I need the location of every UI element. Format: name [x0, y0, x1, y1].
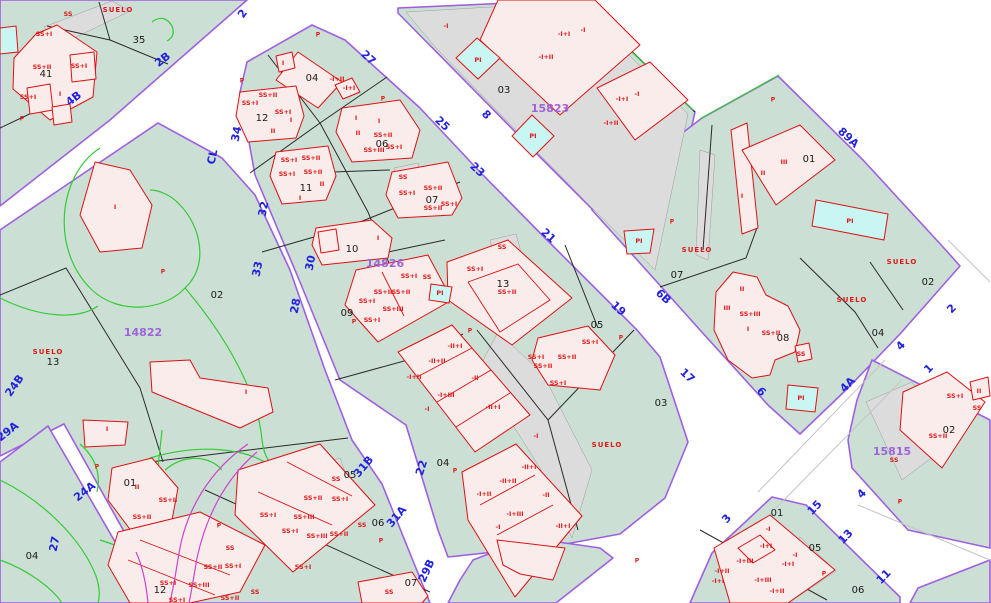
building-floors-label: -I+III: [736, 558, 753, 565]
building-floors-label: SS+III: [188, 582, 209, 589]
parking-mark: P: [771, 97, 776, 104]
pool-label: PI: [797, 394, 804, 402]
building-floors-label: SS: [385, 589, 394, 596]
parcel-number: 04: [26, 551, 39, 562]
building-floors-label: SS+II: [221, 595, 240, 602]
building-floors-label: SS+I: [401, 273, 417, 280]
building-floors-label: SS: [251, 589, 260, 596]
building-floors-label: -I+II: [407, 374, 422, 381]
suelo-label: SUELO: [33, 348, 64, 356]
building-floors-label: -I: [766, 526, 771, 533]
parcel-number: 12: [154, 585, 167, 596]
building-floors-label: SS+I: [359, 298, 375, 305]
parcel-number: 04: [437, 458, 450, 469]
parcel-id: 15815: [873, 445, 911, 458]
building-floors-label: SS+III: [293, 514, 314, 521]
building-floors-label: SS: [64, 11, 73, 18]
building[interactable]: [318, 229, 339, 253]
parcel-number: 03: [655, 398, 668, 409]
building-floors-label: I: [59, 91, 61, 98]
building-floors-label: I: [741, 193, 743, 200]
parking-mark: P: [635, 558, 640, 565]
building-floors-label: II: [740, 286, 745, 293]
building-floors-label: SS+II: [304, 495, 323, 502]
parcel-number: 07: [671, 270, 684, 281]
building-floors-label: SS: [973, 405, 982, 412]
building-floors-label: SS+I: [364, 317, 380, 324]
parking-mark: P: [379, 538, 384, 545]
suelo-label: SUELO: [837, 296, 868, 304]
building-floors-label: -I: [496, 524, 501, 531]
parking-mark: P: [619, 335, 624, 342]
building-floors-label: SS+II: [374, 132, 393, 139]
parcel-id: 14822: [124, 326, 162, 339]
building-floors-label: SS+I: [275, 109, 291, 116]
building-floors-label: II: [320, 181, 325, 188]
building-floors-label: -I+II: [330, 76, 345, 83]
building-floors-label: -II: [471, 375, 478, 382]
parking-mark: P: [898, 499, 903, 506]
building-floors-label: -I+II: [770, 588, 785, 595]
parcel-number: 09: [341, 308, 354, 319]
parcel-number: 11: [300, 183, 313, 194]
building-floors-label: SS: [797, 351, 806, 358]
building-floors-label: SS: [498, 244, 507, 251]
building-floors-label: -II+II: [499, 478, 516, 485]
building-floors-label: -I+II: [715, 568, 730, 575]
pool-label: PI: [529, 132, 536, 140]
building-floors-label: III: [723, 305, 730, 312]
building-floors-label: SS: [226, 545, 235, 552]
parcel-id: 15823: [531, 102, 569, 115]
building-floors-label: -I: [425, 406, 430, 413]
building-floors-label: SS+II: [330, 531, 349, 538]
parcel-number: 05: [591, 320, 604, 331]
building-floors-label: SS+I: [282, 528, 298, 535]
building[interactable]: [83, 420, 128, 447]
parking-mark: P: [316, 32, 321, 39]
building-floors-label: SS+II: [558, 354, 577, 361]
building-floors-label: -I+II: [477, 491, 492, 498]
building-floors-label: SS+III: [306, 533, 327, 540]
building-floors-label: SS+I: [295, 564, 311, 571]
building-floors-label: SS+II: [302, 155, 321, 162]
pool-label: PI: [846, 217, 853, 225]
parcel-number: 35: [133, 35, 146, 46]
building-floors-label: SS+I: [36, 31, 52, 38]
parcel-number: 05: [809, 543, 822, 554]
parcel-number: 06: [376, 139, 389, 150]
building-floors-label: SS+II: [374, 289, 393, 296]
pool-label: PI: [635, 237, 642, 245]
parcel-number: 06: [852, 585, 865, 596]
building-floors-label: SS+I: [279, 171, 295, 178]
building-floors-label: SS: [358, 522, 367, 529]
parcel-id: 14826: [366, 257, 405, 270]
building-floors-label: SS: [332, 476, 341, 483]
building-floors-label: -I: [534, 433, 539, 440]
parcel-number: 13: [47, 357, 60, 368]
building-floors-label: I: [106, 426, 108, 433]
building-floors-label: SS+I: [528, 354, 544, 361]
building-floors-label: II: [761, 170, 766, 177]
building-floors-label: SS+II: [159, 497, 178, 504]
building-floors-label: I: [378, 118, 380, 125]
parcel-number: 04: [306, 73, 319, 84]
building-floors-label: -I: [793, 552, 798, 559]
parcel-number: 01: [771, 508, 784, 519]
pool-label: PI: [436, 289, 443, 297]
building-floors-label: I: [114, 204, 116, 211]
building-floors-label: -I+I: [782, 561, 795, 568]
parcel-number: 01: [124, 478, 137, 489]
building-floors-label: II: [271, 128, 276, 135]
building-floors-label: SS+I: [441, 201, 457, 208]
parcel-number: 12: [256, 113, 269, 124]
building-floors-label: I: [245, 389, 247, 396]
building-floors-label: -II: [542, 492, 549, 499]
suelo-label: SUELO: [682, 246, 713, 254]
suelo-label: SUELO: [103, 6, 134, 14]
parcel-number: 04: [872, 328, 885, 339]
building-floors-label: -I: [635, 91, 640, 98]
building-floors-label: III: [780, 159, 787, 166]
building-floors-label: -I: [581, 27, 586, 34]
parcel-number: 07: [426, 195, 439, 206]
parcel-number: 02: [943, 425, 956, 436]
building-floors-label: SS+II: [259, 92, 278, 99]
parking-mark: P: [161, 269, 166, 276]
building-floors-label: SS+I: [242, 100, 258, 107]
cadastral-map-canvas[interactable]: PIPIPIPIPIPI SSSS+ISS+IISS+ISS+IIIIIIISS…: [0, 0, 991, 603]
building-floors-label: SS+II: [304, 169, 323, 176]
building-floors-label: I: [290, 117, 292, 124]
building-floors-label: -I+III: [506, 511, 523, 518]
building-floors-label: SS+II: [133, 514, 152, 521]
building-floors-label: -I+I: [558, 31, 571, 38]
building-floors-label: SS: [423, 274, 432, 281]
building-floors-label: -I+I: [712, 578, 725, 585]
parking-mark: P: [468, 328, 473, 335]
parcel-number: 41: [40, 69, 53, 80]
building-floors-label: -II+I: [448, 343, 463, 350]
suelo-label: SUELO: [887, 258, 918, 266]
building-floors-label: SS+II: [392, 289, 411, 296]
building-floors-label: -I+I: [616, 96, 629, 103]
parcel-number: 03: [498, 85, 511, 96]
building-floors-label: I: [282, 60, 284, 67]
building-floors-label: SS+II: [424, 205, 443, 212]
building-floors-label: SS+III: [382, 306, 403, 313]
parcel-number: 02: [922, 277, 935, 288]
parcel-number: 08: [777, 333, 790, 344]
building-floors-label: II: [977, 388, 982, 395]
building-floors-label: SS: [399, 174, 408, 181]
building-floors-label: SS+I: [71, 63, 87, 70]
building-floors-label: -II+I: [556, 523, 571, 530]
building-floors-label: -II+II: [428, 358, 445, 365]
building-floors-label: I: [355, 115, 357, 122]
parcel-number: 06: [372, 518, 385, 529]
building[interactable]: [276, 52, 295, 72]
suelo-label: SUELO: [592, 441, 623, 449]
building-floors-label: SS+I: [947, 393, 963, 400]
parking-mark: P: [95, 464, 100, 471]
building-floors-label: -I+III: [754, 577, 771, 584]
building-floors-label: I: [377, 235, 379, 242]
building-floors-label: SS+I: [467, 266, 483, 273]
building-floors-label: -I+II: [604, 120, 619, 127]
parcel-number: 10: [346, 244, 359, 255]
building-floors-label: SS+II: [424, 185, 443, 192]
building-floors-label: SS: [890, 457, 899, 464]
building-floors-label: -I+III: [437, 392, 454, 399]
building-floors-label: SS+I: [20, 94, 36, 101]
building-floors-label: I: [747, 326, 749, 333]
parking-mark: P: [453, 468, 458, 475]
pool-label: PI: [474, 56, 481, 64]
cadastral-map-viewport[interactable]: PIPIPIPIPIPI SSSS+ISS+IISS+ISS+IIIIIIISS…: [0, 0, 991, 603]
parcel-number: 01: [803, 154, 816, 165]
parking-mark: P: [381, 96, 386, 103]
building-floors-label: SS+I: [582, 339, 598, 346]
building-floors-label: -I+I: [343, 85, 356, 92]
parcel-number: 13: [497, 279, 510, 290]
building-floors-label: SS+I: [550, 380, 566, 387]
parking-mark: P: [240, 78, 245, 85]
parcel-number: 02: [211, 290, 224, 301]
building-floors-label: SS+I: [169, 597, 185, 603]
building-floors-label: SS+I: [281, 157, 297, 164]
pool[interactable]: [0, 26, 18, 54]
building-floors-label: SS+III: [739, 311, 760, 318]
building-floors-label: SS+I: [332, 496, 348, 503]
parking-mark: P: [20, 116, 25, 123]
parking-mark: P: [670, 219, 675, 226]
parking-mark: P: [352, 319, 357, 326]
parking-mark: P: [217, 523, 222, 530]
building-floors-label: I: [299, 195, 301, 202]
building-floors-label: -II+I: [486, 404, 501, 411]
building-floors-label: SS+II: [204, 564, 223, 571]
building-floors-label: SS+I: [260, 512, 276, 519]
building-floors-label: SS+II: [534, 363, 553, 370]
building-floors-label: -I: [444, 23, 449, 30]
building-floors-label: -I+I: [760, 543, 773, 550]
parking-mark: P: [822, 571, 827, 578]
building-floors-label: II: [356, 130, 361, 137]
building-floors-label: SS+II: [498, 289, 517, 296]
building-floors-label: -I+II: [539, 54, 554, 61]
building-floors-label: SS+I: [225, 563, 241, 570]
building-floors-label: SS+I: [399, 190, 415, 197]
building-floors-label: -II+I: [522, 464, 537, 471]
